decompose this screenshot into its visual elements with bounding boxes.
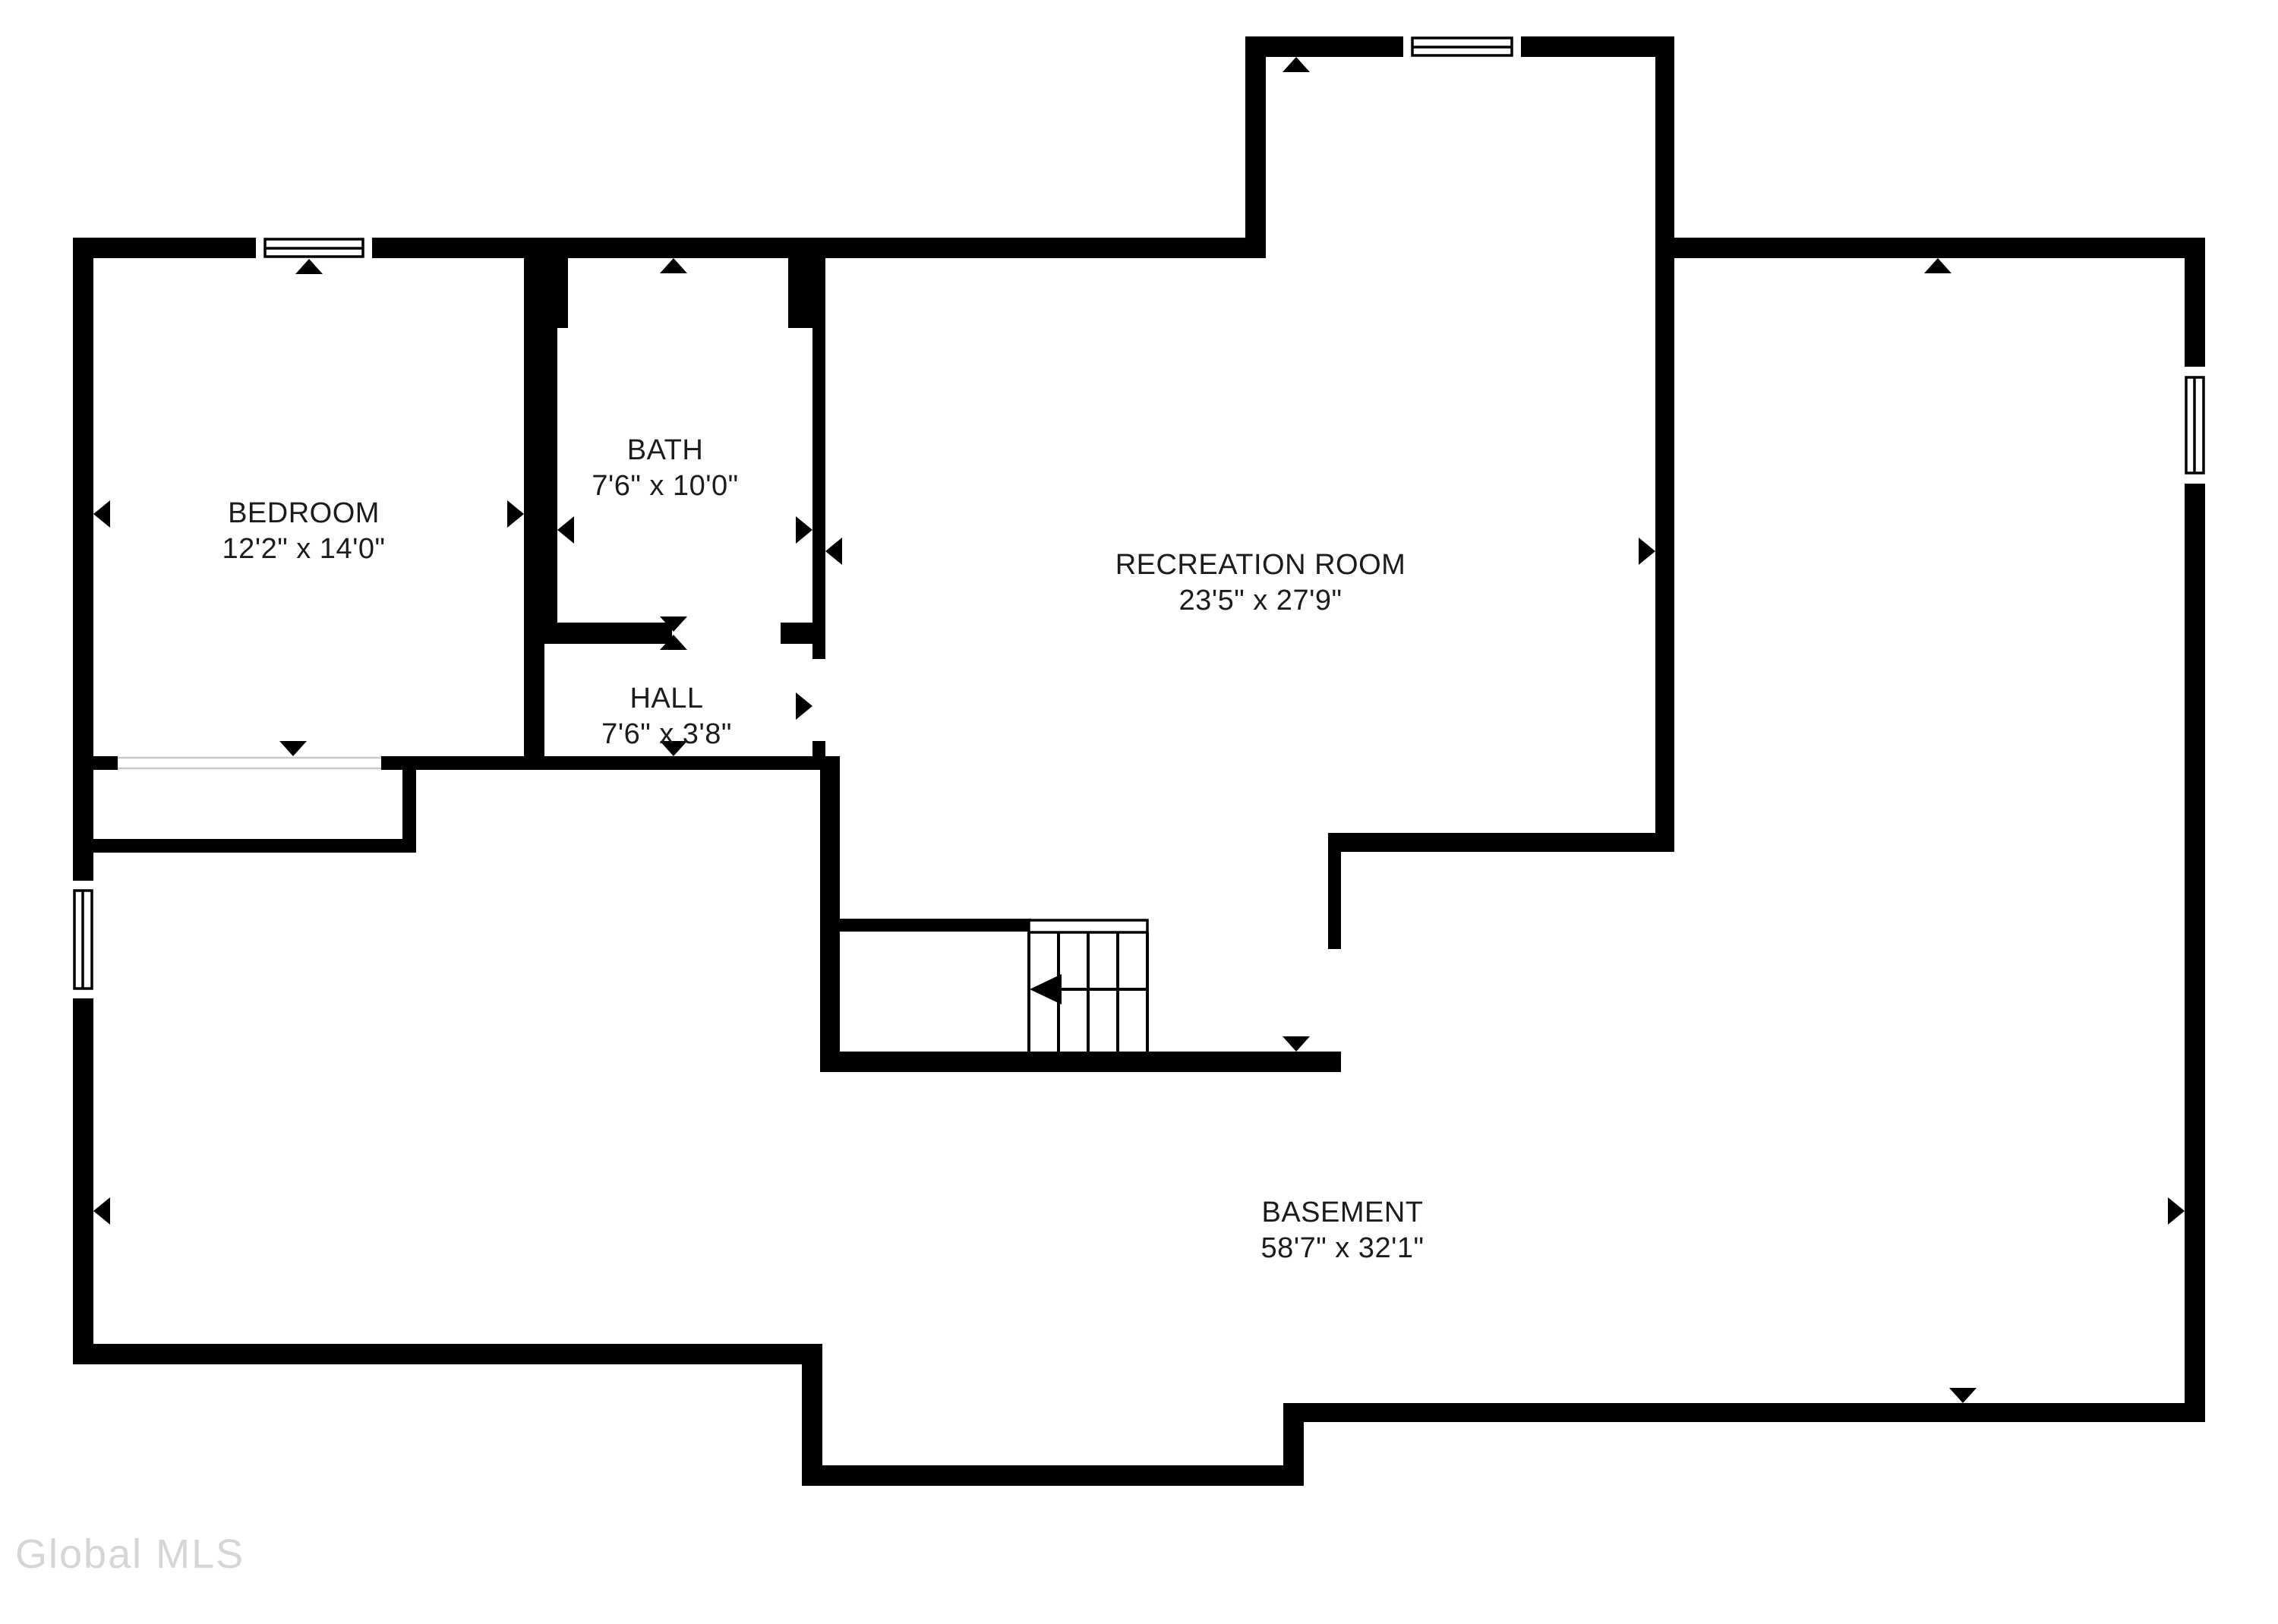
wall-bottom-step-down — [802, 1344, 822, 1486]
wall-top-left-a — [73, 238, 256, 258]
wall-bath-bottom-a — [544, 623, 672, 644]
room-dimensions: 12'2" x 14'0" — [222, 531, 386, 567]
room-dimensions: 7'6" x 3'8" — [601, 717, 732, 752]
wall-hall-right-stub-bottom — [812, 741, 825, 756]
wall-stair-top — [840, 919, 1031, 932]
floor-plan-page: BEDROOM 12'2" x 14'0" BATH 7'6" x 10'0" … — [0, 0, 2278, 1624]
wall-stair-bottom — [820, 1052, 1341, 1072]
room-name: RECREATION ROOM — [1115, 549, 1406, 581]
room-name: BATH — [627, 434, 704, 466]
interior-walls — [73, 258, 1674, 1072]
floor-plan-drawing — [0, 0, 2278, 1624]
arrow-up-top-right-wall-icon — [1924, 258, 1951, 273]
wall-stair-left — [820, 756, 840, 1072]
global-mls-watermark: Global MLS — [15, 1531, 245, 1578]
wall-recreation-right — [1655, 36, 1674, 852]
wall-hall-bottom — [381, 756, 840, 770]
arrow-right-recreation-icon — [1639, 538, 1655, 565]
room-name: BASEMENT — [1261, 1197, 1423, 1228]
wall-bath-left — [544, 328, 557, 644]
room-dimensions: 58'7" x 32'1" — [1261, 1231, 1425, 1266]
arrow-down-bottom-wall-icon — [1949, 1388, 1977, 1403]
wall-bath-left-stub — [544, 258, 568, 328]
wall-bedroom-right — [524, 258, 544, 770]
arrow-right-bath-icon — [796, 516, 812, 544]
wall-bedroom-bottom-a — [73, 756, 118, 770]
arrow-left-bedroom-icon — [93, 500, 110, 528]
wall-top-left-b — [372, 238, 1266, 258]
wall-projection-left — [1245, 36, 1266, 258]
room-label-hall: HALL 7'6" x 3'8" — [601, 681, 732, 752]
wall-bath-right — [812, 328, 825, 644]
opening-marker-arrows — [93, 57, 2185, 1403]
arrow-right-basement-icon — [2168, 1197, 2185, 1225]
recreation-room-top-window-icon — [1412, 38, 1512, 55]
arrow-down-bedroom-opening-icon — [279, 741, 307, 756]
wall-right-upper — [2185, 238, 2205, 367]
arrow-up-projection-window-icon — [1283, 57, 1310, 72]
stairs-down-symbol — [1029, 920, 1148, 1052]
bedroom-top-window-icon — [265, 239, 363, 257]
arrow-left-bath-icon — [557, 516, 574, 544]
room-name: BEDROOM — [228, 497, 380, 529]
wall-bottom-center — [802, 1465, 1304, 1486]
wall-right-lower — [2185, 484, 2205, 1422]
wall-bottom-left — [73, 1344, 822, 1364]
wall-top-right — [1655, 238, 2205, 258]
wall-closet-vertical — [402, 756, 416, 853]
arrow-down-stair-wall-icon — [1283, 1036, 1310, 1052]
wall-closet-bottom — [73, 839, 416, 853]
arrow-right-hall-icon — [796, 692, 812, 720]
bedroom-opening-lines — [118, 758, 381, 768]
left-wall-window-icon — [74, 891, 92, 989]
right-wall-window-icon — [2186, 377, 2204, 473]
wall-recreation-bottom — [1328, 833, 1674, 852]
room-dimensions: 7'6" x 10'0" — [592, 468, 738, 504]
wall-left-upper — [73, 238, 93, 881]
room-label-bath: BATH 7'6" x 10'0" — [592, 433, 738, 504]
room-label-recreation-room: RECREATION ROOM 23'5" x 27'9" — [1115, 547, 1406, 619]
arrow-up-bath-top-icon — [660, 258, 687, 273]
room-label-basement: BASEMENT 58'7" x 32'1" — [1261, 1195, 1425, 1266]
wall-projection-top-b — [1521, 36, 1674, 57]
wall-bottom-right — [1283, 1403, 2205, 1422]
arrow-left-basement-icon — [93, 1197, 110, 1225]
wall-projection-top-a — [1245, 36, 1403, 57]
wall-bath-right-stub — [788, 258, 825, 328]
room-dimensions: 23'5" x 27'9" — [1115, 583, 1406, 619]
room-label-bedroom: BEDROOM 12'2" x 14'0" — [222, 496, 386, 567]
wall-bath-bottom-b — [781, 623, 825, 644]
wall-left-lower — [73, 998, 93, 1364]
arrow-left-recreation-icon — [825, 538, 842, 565]
room-name: HALL — [629, 683, 703, 714]
arrow-right-bedroom-icon — [507, 500, 524, 528]
wall-hall-right-stub-top — [812, 644, 825, 659]
arrow-up-bedroom-window-icon — [295, 259, 323, 274]
